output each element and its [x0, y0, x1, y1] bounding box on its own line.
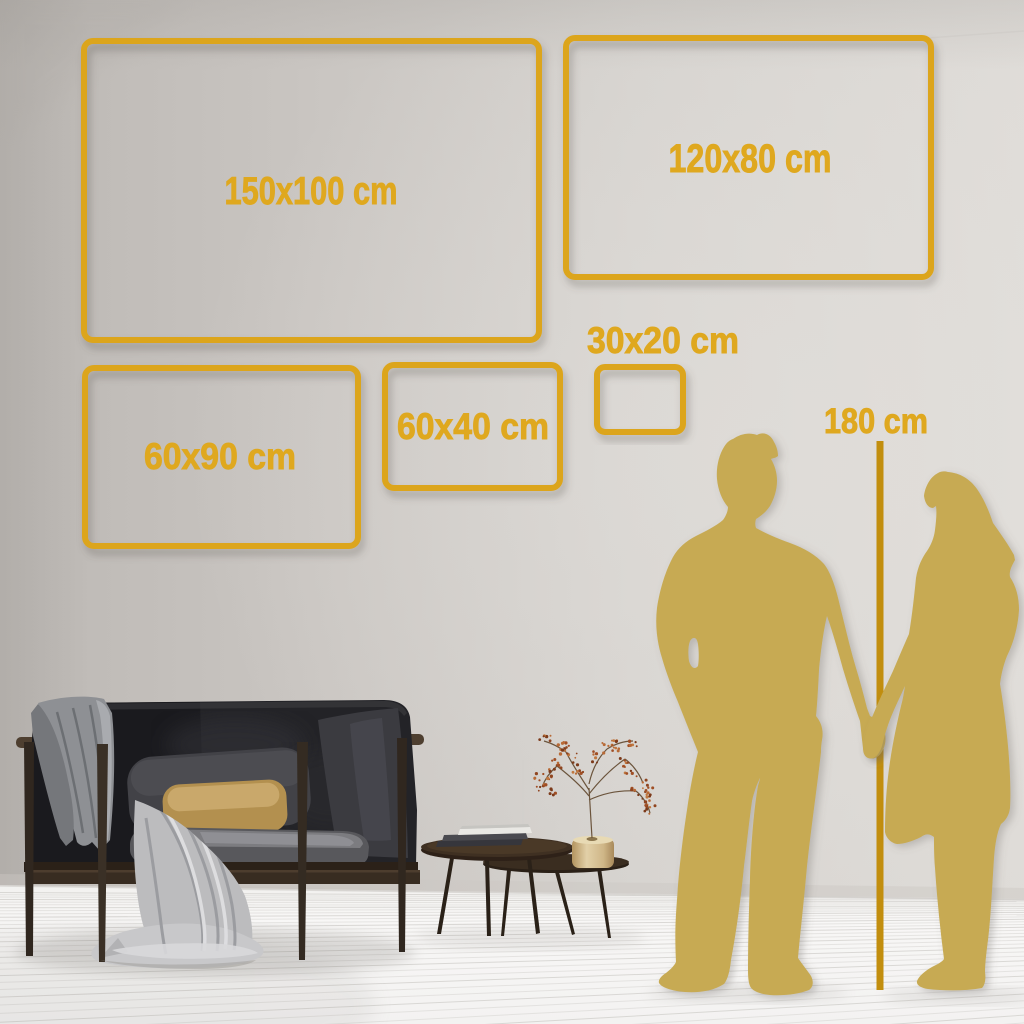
svg-text:60x90 cm: 60x90 cm: [144, 436, 296, 477]
svg-text:120x80 cm: 120x80 cm: [669, 137, 832, 181]
svg-text:30x20 cm: 30x20 cm: [587, 320, 739, 361]
svg-text:60x40 cm: 60x40 cm: [397, 406, 549, 447]
svg-text:150x100 cm: 150x100 cm: [225, 170, 398, 213]
svg-text:180 cm: 180 cm: [824, 402, 928, 441]
